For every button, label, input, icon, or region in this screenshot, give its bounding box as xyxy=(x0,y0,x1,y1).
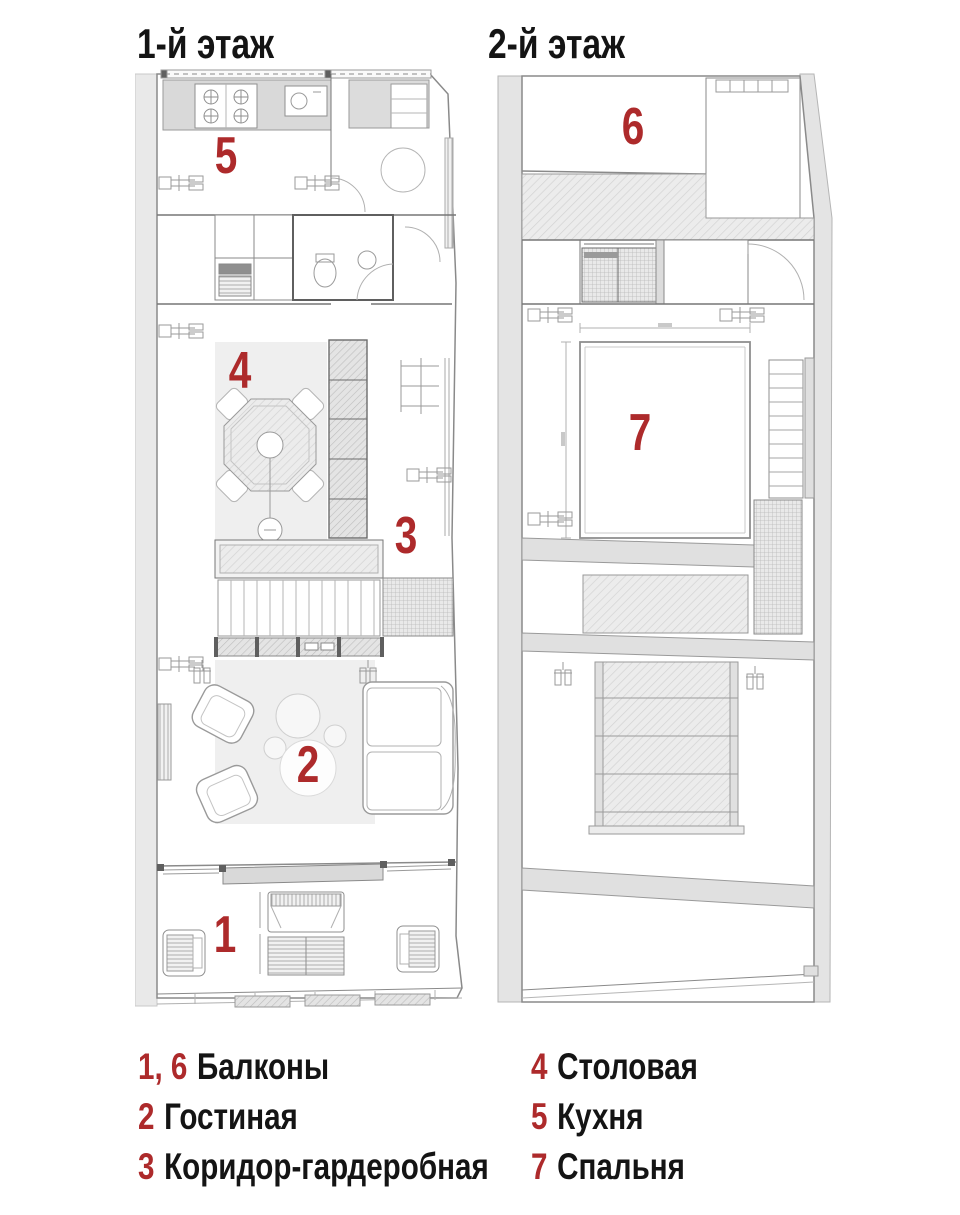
balcony-chair xyxy=(397,926,439,972)
floor2-grid-block xyxy=(754,500,802,634)
legend-number: 4 xyxy=(531,1046,547,1087)
balcony-chair xyxy=(163,930,205,976)
floor2-left-wall xyxy=(498,76,522,1002)
floor2-title: 2-й этаж xyxy=(488,20,659,68)
stair-landing xyxy=(383,578,453,636)
corridor-rails xyxy=(401,358,439,414)
floor1-top-window xyxy=(161,70,431,78)
floor1-title: 1-й этаж xyxy=(137,20,308,68)
floor1-kitchen xyxy=(163,80,331,130)
legend-label: Гостиная xyxy=(164,1096,298,1137)
legend-item: 4Столовая xyxy=(531,1042,740,1092)
legend-label: Столовая xyxy=(557,1046,698,1087)
shelf-unit xyxy=(329,340,367,538)
legend-column-left: 1, 6Балконы 2Гостиная 3Коридор-гардеробн… xyxy=(138,1042,576,1192)
legend-item: 5Кухня xyxy=(531,1092,740,1142)
legend-number: 7 xyxy=(531,1146,547,1187)
room-marker-1: 1 xyxy=(214,909,237,961)
room-marker-4: 4 xyxy=(229,345,252,397)
legend-item: 3Коридор-гардеробная xyxy=(138,1142,576,1192)
floor2-roof-block xyxy=(706,78,800,218)
pouf xyxy=(324,725,346,747)
room-marker-7: 7 xyxy=(629,407,652,459)
floor2-hatch-strip xyxy=(583,575,748,633)
legend-number: 3 xyxy=(138,1146,154,1187)
sofa xyxy=(363,682,455,814)
floor1-sideboard xyxy=(215,540,383,578)
legend-label: Кухня xyxy=(557,1096,644,1137)
floor2-title-text: 2-й этаж xyxy=(488,20,625,68)
room-marker-5: 5 xyxy=(215,130,238,182)
floor-plan-infographic: 1-й этаж 2-й этаж xyxy=(0,0,960,1215)
floor1-title-text: 1-й этаж xyxy=(137,20,274,68)
floor1-cabinet-row xyxy=(214,637,384,657)
closet xyxy=(664,240,748,304)
floor1-neighbour-wall xyxy=(135,74,157,1006)
legend-label: Спальня xyxy=(557,1146,685,1187)
room-marker-6: 6 xyxy=(622,101,645,153)
legend-label: Коридор-гардеробная xyxy=(164,1146,489,1187)
legend-number: 1, 6 xyxy=(138,1046,187,1087)
legend-number: 2 xyxy=(138,1096,154,1137)
floor1-wardrobe xyxy=(215,215,293,300)
legend-item: 2Гостиная xyxy=(138,1092,576,1142)
floor2-plan xyxy=(488,68,852,1010)
legend-label: Балконы xyxy=(197,1046,329,1087)
wall-radiator xyxy=(445,138,453,248)
pouf xyxy=(276,694,320,738)
legend-item: 7Спальня xyxy=(531,1142,740,1192)
wall-radiator xyxy=(158,704,171,780)
floor1-stairs xyxy=(218,578,453,636)
legend-column-right: 4Столовая 5Кухня 7Спальня xyxy=(531,1042,740,1192)
room-marker-2: 2 xyxy=(297,739,320,791)
floor2-stairs xyxy=(769,358,814,498)
room-marker-3: 3 xyxy=(395,510,418,562)
legend-number: 5 xyxy=(531,1096,547,1137)
legend-item: 1, 6Балконы xyxy=(138,1042,576,1092)
